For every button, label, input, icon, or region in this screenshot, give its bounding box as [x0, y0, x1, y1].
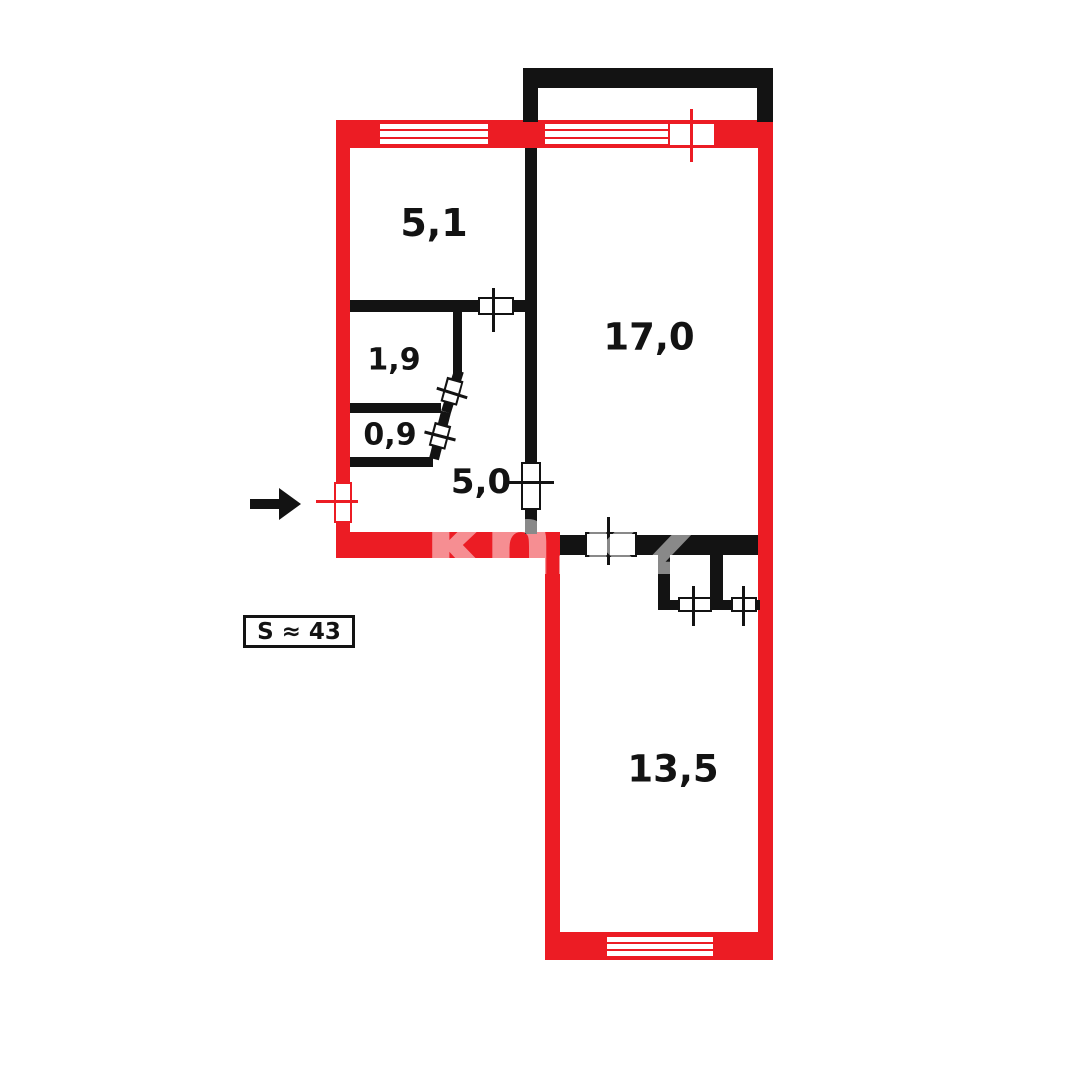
door-tick-room51	[492, 288, 495, 332]
entrance-arrow-icon	[250, 488, 301, 520]
room-label-1-9: 1,9	[367, 343, 420, 378]
room-label-5-0: 5,0	[451, 462, 511, 502]
door-opening-closet-1	[678, 597, 712, 612]
room-label-17-0: 17,0	[603, 316, 694, 359]
room-label-13-5: 13,5	[627, 748, 718, 791]
floor-plan: 5,1 1,9 0,9 5,0 17,0 13,5 S ≈ 43 kn.kz	[0, 0, 1080, 1080]
door-opening-room51	[478, 297, 514, 315]
door-opening-room170	[521, 462, 541, 510]
door-tick-closet-1	[692, 586, 695, 626]
door-opening-room135	[585, 532, 637, 557]
door-tick-closet-2	[742, 586, 745, 626]
total-area-label: S ≈ 43	[257, 619, 341, 645]
room-label-5-1: 5,1	[400, 201, 467, 245]
door-tick-room170	[509, 481, 554, 484]
room-label-0-9: 0,9	[363, 418, 416, 453]
entrance-door-tick	[316, 500, 358, 503]
balcony-door-tick	[690, 109, 693, 162]
door-tick-room135	[607, 517, 610, 565]
plan-svg-overlay	[0, 0, 1080, 1080]
total-area-badge: S ≈ 43	[243, 615, 355, 648]
